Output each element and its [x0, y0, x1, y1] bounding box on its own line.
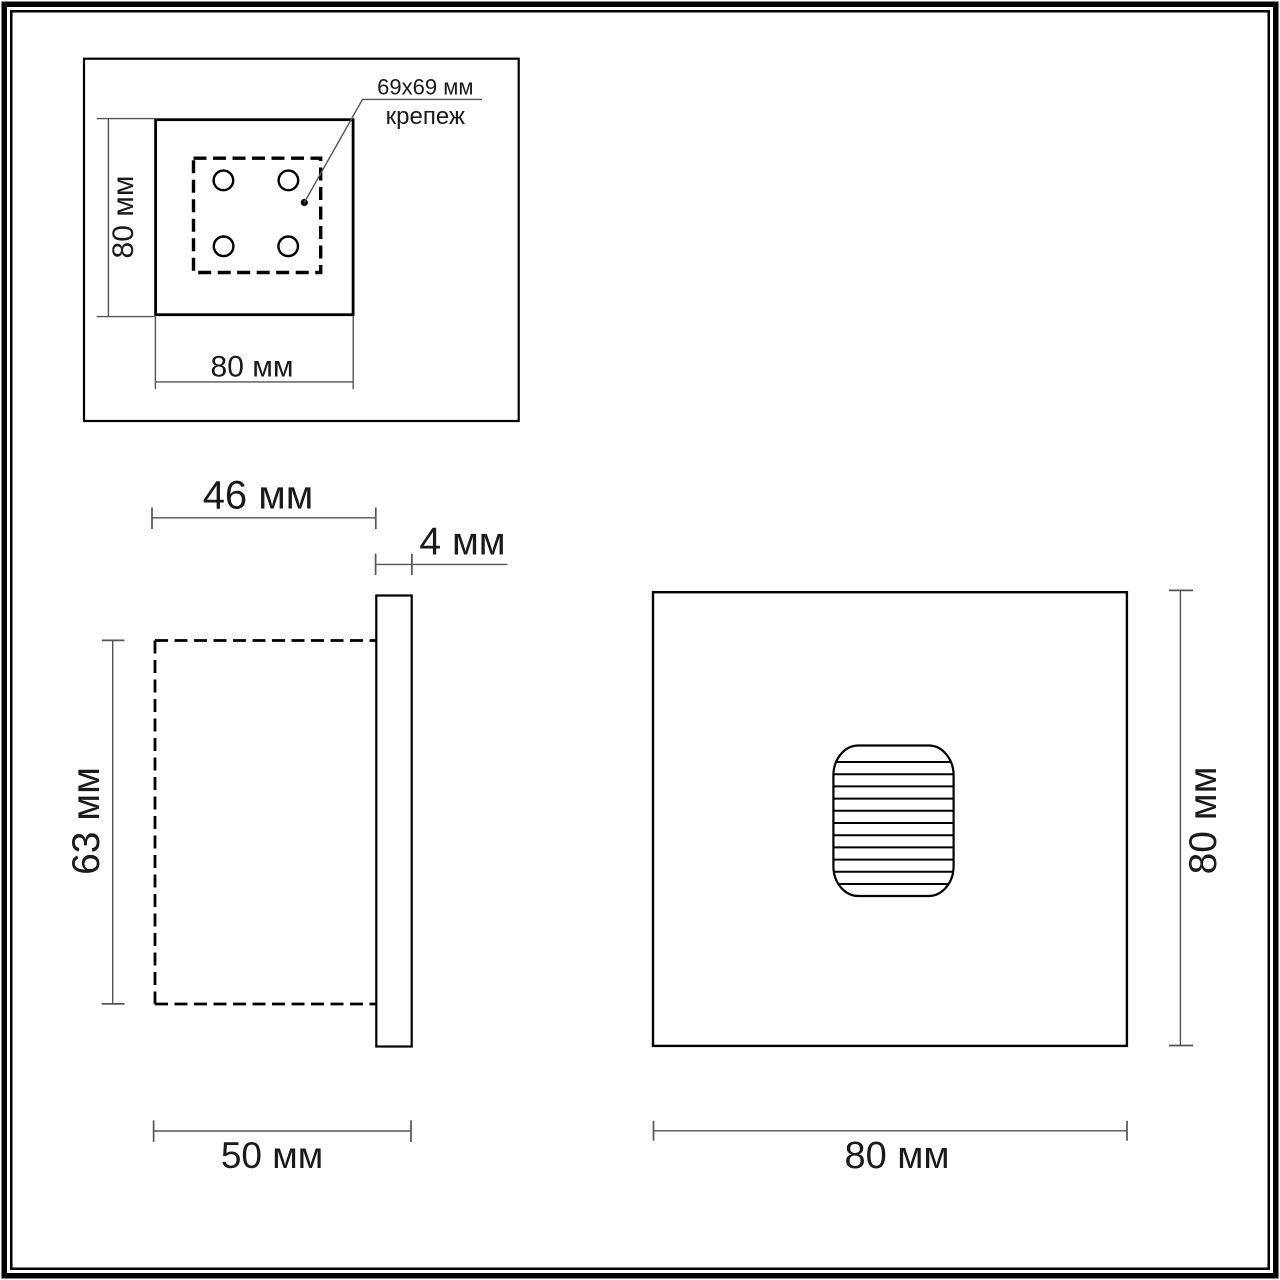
svg-text:крепеж: крепеж	[386, 103, 465, 130]
svg-text:80 мм: 80 мм	[1182, 767, 1225, 875]
svg-text:4 мм: 4 мм	[419, 520, 505, 563]
svg-text:69x69 мм: 69x69 мм	[377, 75, 473, 100]
svg-text:80 мм: 80 мм	[844, 1135, 949, 1177]
svg-text:46 мм: 46 мм	[203, 474, 314, 518]
svg-text:80 мм: 80 мм	[211, 351, 294, 384]
svg-text:80 мм: 80 мм	[107, 176, 140, 259]
svg-text:63 мм: 63 мм	[65, 767, 108, 875]
svg-text:50 мм: 50 мм	[221, 1135, 323, 1176]
